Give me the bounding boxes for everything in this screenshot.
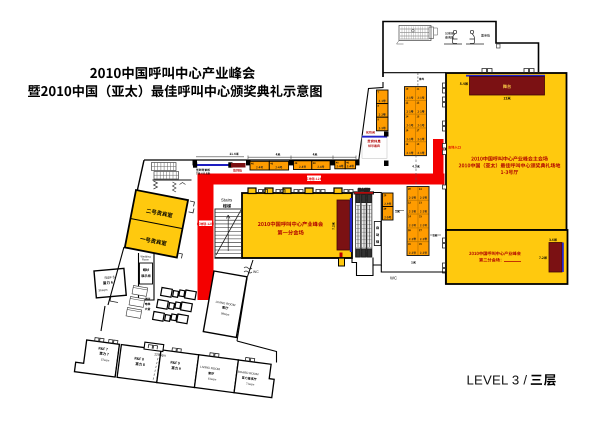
svg-text:Room: Room bbox=[142, 258, 149, 262]
svg-text:Stairs: Stairs bbox=[221, 198, 233, 203]
svg-text:WC: WC bbox=[390, 276, 397, 281]
svg-text:LEVEL 3 /: LEVEL 3 / bbox=[467, 372, 528, 387]
svg-text:36sqm: 36sqm bbox=[98, 288, 108, 293]
svg-text:WC: WC bbox=[253, 270, 259, 274]
